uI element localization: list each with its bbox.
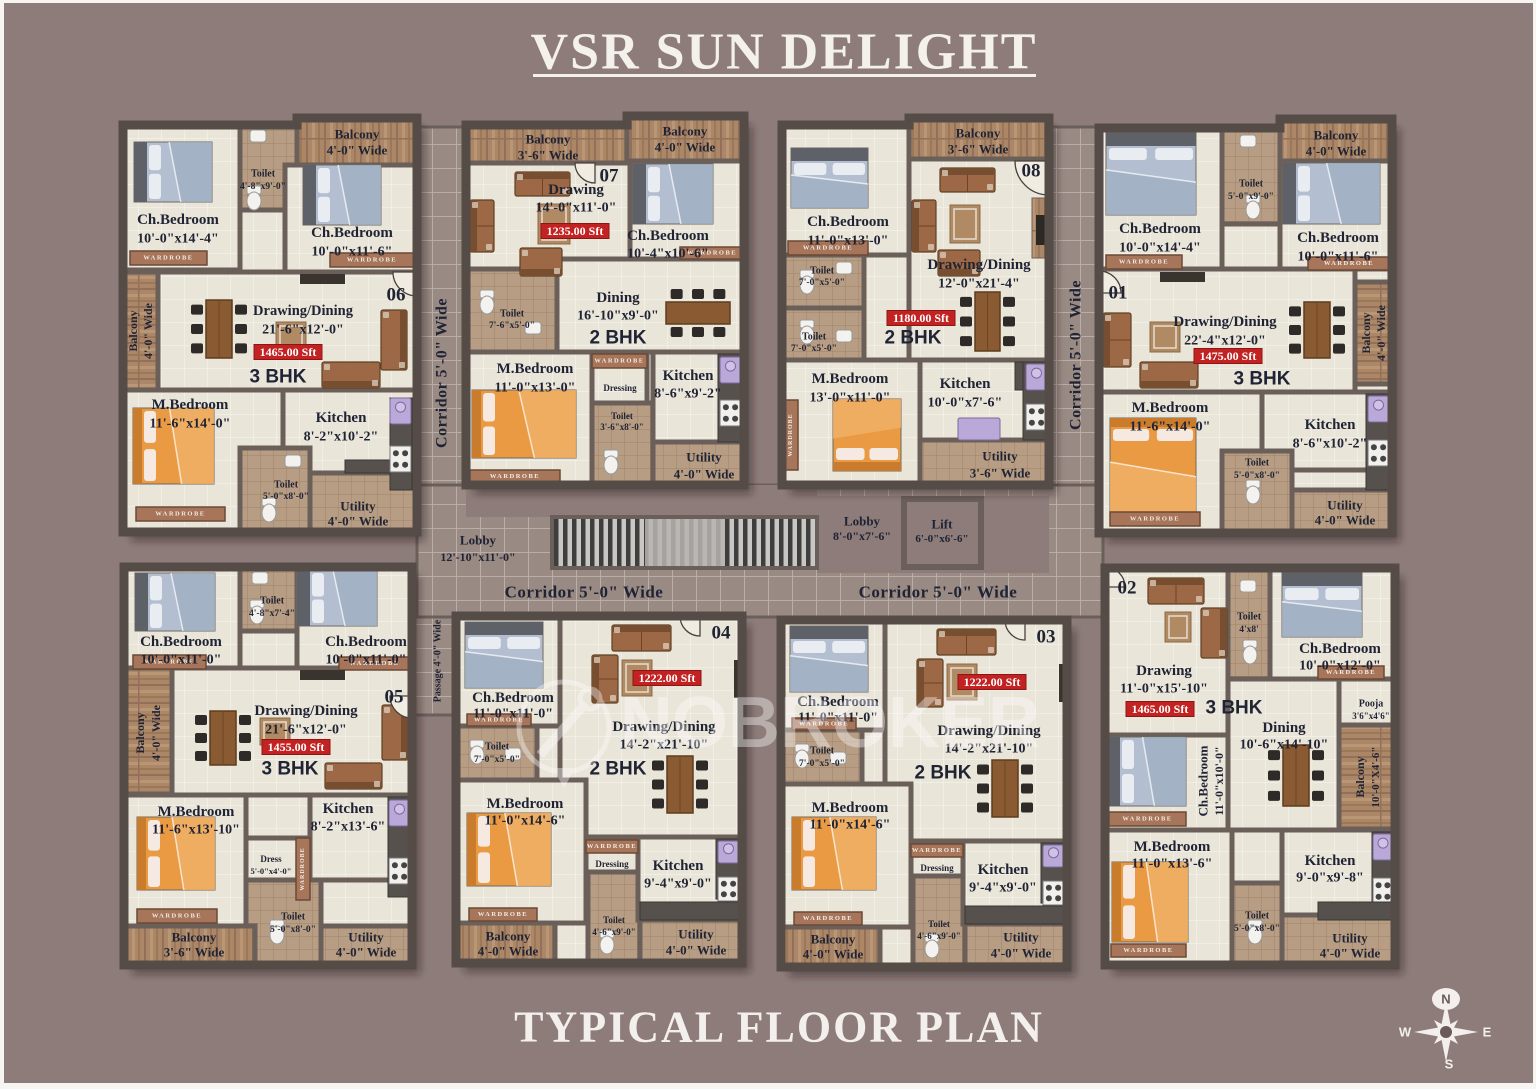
- svg-text:M.Bedroom: M.Bedroom: [152, 397, 229, 413]
- svg-text:Balcony: Balcony: [133, 712, 147, 753]
- svg-text:4'-0" Wide: 4'-0" Wide: [149, 704, 163, 761]
- svg-text:21'-6"x12'-0": 21'-6"x12'-0": [262, 323, 344, 338]
- svg-text:Dressing: Dressing: [603, 383, 637, 393]
- svg-text:10'-0"x14'-4": 10'-0"x14'-4": [1119, 241, 1201, 256]
- svg-text:Utility: Utility: [686, 450, 722, 465]
- svg-text:M.Bedroom: M.Bedroom: [812, 800, 889, 816]
- svg-text:WARDROBE: WARDROBE: [300, 847, 306, 890]
- svg-text:07: 07: [600, 166, 620, 187]
- svg-text:7'-0"x5'-0": 7'-0"x5'-0": [799, 278, 845, 288]
- svg-text:WARDROBE: WARDROBE: [152, 913, 202, 920]
- svg-text:Kitchen: Kitchen: [978, 862, 1029, 878]
- svg-text:1180.00 Sft: 1180.00 Sft: [893, 311, 949, 325]
- svg-text:Utility: Utility: [340, 499, 376, 514]
- svg-text:10'-0"x12'-0": 10'-0"x12'-0": [1299, 659, 1381, 674]
- svg-text:8'-2"x13'-6": 8'-2"x13'-6": [311, 820, 386, 835]
- svg-text:Utility: Utility: [1332, 931, 1368, 946]
- svg-text:03: 03: [1037, 627, 1056, 648]
- svg-text:3'-6" Wide: 3'-6" Wide: [970, 466, 1031, 481]
- svg-text:Toilet: Toilet: [251, 169, 276, 180]
- svg-text:02: 02: [1118, 578, 1137, 599]
- svg-text:M.Bedroom: M.Bedroom: [1134, 839, 1211, 855]
- svg-text:11'-0"x13'-0": 11'-0"x13'-0": [808, 234, 889, 249]
- svg-text:Kitchen: Kitchen: [653, 858, 704, 874]
- svg-text:Balcony: Balcony: [663, 124, 708, 139]
- svg-text:10'-6"x14'-10": 10'-6"x14'-10": [1240, 738, 1329, 753]
- svg-text:Toilet: Toilet: [802, 332, 827, 343]
- svg-text:Toilet: Toilet: [1239, 179, 1264, 190]
- svg-text:Toilet: Toilet: [260, 596, 285, 607]
- svg-text:10'-4"x10'-6": 10'-4"x10'-6": [627, 247, 709, 262]
- svg-text:7'-6"x5'-0": 7'-6"x5'-0": [489, 321, 535, 331]
- svg-text:Kitchen: Kitchen: [1305, 417, 1356, 433]
- svg-text:Dining: Dining: [1262, 720, 1306, 736]
- svg-text:4'x8': 4'x8': [1239, 625, 1259, 635]
- svg-text:N: N: [1441, 992, 1450, 1007]
- svg-text:Ch.Bedroom: Ch.Bedroom: [472, 690, 554, 706]
- svg-text:8'-0"x7'-6": 8'-0"x7'-6": [833, 529, 891, 543]
- svg-text:4'-0" Wide: 4'-0" Wide: [327, 143, 388, 158]
- svg-text:Drawing: Drawing: [1136, 663, 1192, 679]
- svg-text:2 BHK: 2 BHK: [914, 763, 971, 784]
- svg-text:Toilet: Toilet: [485, 742, 510, 753]
- svg-text:WARDROBE: WARDROBE: [788, 413, 794, 456]
- svg-text:11'-6"x14'-0": 11'-6"x14'-0": [1130, 420, 1211, 435]
- svg-text:Utility: Utility: [982, 449, 1018, 464]
- svg-text:3'-6" Wide: 3'-6" Wide: [518, 148, 579, 163]
- svg-text:11'-0"x15'-10": 11'-0"x15'-10": [1120, 682, 1208, 697]
- svg-text:22'-4"x12'-0": 22'-4"x12'-0": [1184, 334, 1266, 349]
- svg-text:4'-0" Wide: 4'-0" Wide: [655, 140, 716, 155]
- svg-text:WARDROBE: WARDROBE: [803, 915, 853, 922]
- svg-text:1465.00 Sft: 1465.00 Sft: [260, 345, 317, 359]
- svg-text:4'-0" Wide: 4'-0" Wide: [328, 514, 389, 529]
- svg-text:Ch.Bedroom: Ch.Bedroom: [325, 634, 407, 650]
- svg-text:4'-0" Wide: 4'-0" Wide: [1315, 513, 1376, 528]
- svg-text:Corridor 5'-0" Wide: Corridor 5'-0" Wide: [505, 583, 664, 602]
- svg-text:WARDROBE: WARDROBE: [1123, 947, 1173, 954]
- svg-text:Drawing: Drawing: [548, 182, 604, 198]
- svg-text:1235.00 Sft: 1235.00 Sft: [547, 224, 604, 238]
- svg-text:Passage 4'-0" Wide: Passage 4'-0" Wide: [433, 619, 444, 702]
- svg-text:3 BHK: 3 BHK: [1205, 698, 1262, 719]
- svg-text:4'-0" Wide: 4'-0" Wide: [336, 945, 397, 960]
- svg-text:3 BHK: 3 BHK: [249, 367, 306, 388]
- svg-text:Drawing/Dining: Drawing/Dining: [927, 257, 1031, 273]
- svg-text:Balcony: Balcony: [1359, 312, 1373, 353]
- svg-text:21'-6"x12'-0": 21'-6"x12'-0": [265, 723, 347, 738]
- svg-text:WARDROBE: WARDROBE: [587, 843, 637, 850]
- svg-text:M.Bedroom: M.Bedroom: [812, 371, 889, 387]
- svg-text:5'-0"x8'-0": 5'-0"x8'-0": [1234, 924, 1280, 934]
- svg-text:VSR SUN DELIGHT: VSR SUN DELIGHT: [531, 24, 1038, 81]
- svg-text:3'-6" Wide: 3'-6" Wide: [164, 945, 225, 960]
- svg-text:M.Bedroom: M.Bedroom: [487, 796, 564, 812]
- svg-text:1465.00 Sft: 1465.00 Sft: [1132, 702, 1189, 716]
- svg-text:Toilet: Toilet: [603, 915, 625, 925]
- svg-text:WARDROBE: WARDROBE: [155, 511, 205, 518]
- svg-text:Ch.Bedroom: Ch.Bedroom: [311, 225, 393, 241]
- svg-text:6'-0"x6'-6": 6'-0"x6'-6": [915, 533, 968, 545]
- svg-text:Ch.Bedroom: Ch.Bedroom: [1297, 230, 1379, 246]
- svg-text:Pooja: Pooja: [1359, 699, 1383, 710]
- svg-text:8'-6"x9'-2": 8'-6"x9'-2": [654, 387, 722, 402]
- svg-text:4'-0" Wide: 4'-0" Wide: [1306, 144, 1367, 159]
- svg-text:Lobby: Lobby: [460, 533, 497, 548]
- svg-text:Toilet: Toilet: [1245, 911, 1270, 922]
- svg-text:Utility: Utility: [1327, 498, 1363, 513]
- svg-text:2 BHK: 2 BHK: [884, 328, 941, 349]
- svg-text:Lift: Lift: [932, 517, 954, 532]
- svg-text:4'-6"x9'-0": 4'-6"x9'-0": [592, 927, 636, 937]
- svg-text:4'-0" Wide: 4'-0" Wide: [141, 302, 155, 359]
- svg-text:3 BHK: 3 BHK: [1233, 369, 1290, 390]
- svg-text:Balcony: Balcony: [811, 932, 856, 947]
- svg-text:5'-0"x8'-0": 5'-0"x8'-0": [1234, 471, 1280, 481]
- svg-text:4'-0" Wide: 4'-0" Wide: [991, 946, 1052, 961]
- svg-text:4'-0" Wide: 4'-0" Wide: [803, 947, 864, 962]
- svg-text:4'-8"x7'-4": 4'-8"x7'-4": [249, 609, 295, 619]
- svg-text:01: 01: [1109, 283, 1128, 304]
- svg-text:Drawing/Dining: Drawing/Dining: [254, 703, 358, 719]
- svg-text:11'-6"x14'-0": 11'-6"x14'-0": [150, 417, 231, 432]
- svg-text:08: 08: [1022, 161, 1041, 182]
- svg-text:9'-4"x9'-0": 9'-4"x9'-0": [644, 877, 712, 892]
- svg-text:Ch.Bedroom: Ch.Bedroom: [807, 214, 889, 230]
- svg-text:Dressing: Dressing: [595, 859, 629, 869]
- svg-text:1455.00 Sft: 1455.00 Sft: [268, 740, 325, 754]
- svg-text:Kitchen: Kitchen: [940, 376, 991, 392]
- svg-text:WARDROBE: WARDROBE: [1130, 516, 1180, 523]
- svg-text:Ch.Bedroom: Ch.Bedroom: [627, 228, 709, 244]
- svg-text:8'-6"x10'-2": 8'-6"x10'-2": [1293, 437, 1368, 452]
- svg-text:Balcony: Balcony: [1314, 128, 1359, 143]
- svg-text:Ch.Bedroom: Ch.Bedroom: [140, 634, 222, 650]
- svg-text:Corridor 5'-0" Wide: Corridor 5'-0" Wide: [434, 298, 451, 448]
- svg-text:TYPICAL FLOOR PLAN: TYPICAL FLOOR PLAN: [514, 1003, 1044, 1052]
- svg-text:Ch.Bedroom: Ch.Bedroom: [137, 212, 219, 228]
- svg-text:3'-6" Wide: 3'-6" Wide: [948, 142, 1009, 157]
- svg-text:05: 05: [385, 687, 404, 708]
- svg-text:4'-0" Wide: 4'-0" Wide: [666, 943, 727, 958]
- svg-text:14'-0"x11'-0": 14'-0"x11'-0": [536, 201, 617, 216]
- svg-text:4'-0" Wide: 4'-0" Wide: [1374, 304, 1388, 361]
- svg-text:10'-0"x7'-6": 10'-0"x7'-6": [928, 396, 1003, 411]
- svg-text:Kitchen: Kitchen: [1305, 853, 1356, 869]
- svg-text:M.Bedroom: M.Bedroom: [1132, 400, 1209, 416]
- svg-text:5'-0"x4'-0": 5'-0"x4'-0": [250, 866, 291, 876]
- svg-text:4'-0" Wide: 4'-0" Wide: [1320, 946, 1381, 961]
- svg-text:Balcony: Balcony: [126, 310, 140, 351]
- svg-text:3'6"x4'6": 3'6"x4'6": [1352, 711, 1390, 721]
- svg-text:11'-0"x13'-0": 11'-0"x13'-0": [495, 381, 576, 396]
- svg-text:W: W: [1399, 1025, 1412, 1040]
- svg-text:WARDROBE: WARDROBE: [490, 473, 540, 480]
- svg-text:WARDROBE: WARDROBE: [594, 358, 644, 365]
- svg-text:Drawing/Dining: Drawing/Dining: [253, 303, 354, 319]
- svg-text:5'-0"x9'-0": 5'-0"x9'-0": [1228, 192, 1274, 202]
- svg-text:3'-6"x8'-0": 3'-6"x8'-0": [600, 422, 644, 432]
- svg-text:4'-0" Wide: 4'-0" Wide: [674, 467, 735, 482]
- svg-text:Toilet: Toilet: [1245, 458, 1270, 469]
- svg-text:WARDROBE: WARDROBE: [912, 847, 962, 854]
- svg-text:10'-0"x11'-0": 10'-0"x11'-0": [326, 653, 407, 668]
- svg-text:NOBROKER: NOBROKER: [620, 683, 1040, 763]
- svg-text:Ch.Bedroom: Ch.Bedroom: [1196, 745, 1211, 816]
- svg-text:7'-0"x5'-0": 7'-0"x5'-0": [474, 755, 520, 765]
- svg-text:Balcony: Balcony: [526, 132, 571, 147]
- svg-text:11'-0"x10'-0": 11'-0"x10'-0": [1212, 746, 1226, 815]
- svg-text:4'-0" Wide: 4'-0" Wide: [478, 944, 539, 959]
- svg-text:8'-2"x10'-2": 8'-2"x10'-2": [304, 430, 379, 445]
- svg-text:Drawing/Dining: Drawing/Dining: [1173, 314, 1277, 330]
- svg-text:WARDROBE: WARDROBE: [1122, 816, 1172, 823]
- svg-text:Corridor 5'-0" Wide: Corridor 5'-0" Wide: [1068, 280, 1085, 430]
- svg-text:10'-0"x14'-4": 10'-0"x14'-4": [137, 232, 219, 247]
- svg-text:1475.00 Sft: 1475.00 Sft: [1200, 349, 1257, 363]
- svg-text:9'-0"x9'-8": 9'-0"x9'-8": [1296, 871, 1364, 886]
- svg-text:16'-10"x9'-0": 16'-10"x9'-0": [577, 309, 659, 324]
- svg-text:10'-0"x11'-0": 10'-0"x11'-0": [141, 653, 222, 668]
- svg-text:Ch.Bedroom: Ch.Bedroom: [1299, 641, 1381, 657]
- svg-text:WARDROBE: WARDROBE: [478, 911, 528, 918]
- svg-text:Ch.Bedroom: Ch.Bedroom: [1119, 221, 1201, 237]
- svg-text:12'-0"x21'-4": 12'-0"x21'-4": [938, 277, 1020, 292]
- svg-text:Balcony: Balcony: [335, 127, 380, 142]
- svg-text:10'-0"x11'-6": 10'-0"x11'-6": [312, 245, 393, 260]
- svg-text:Corridor 5'-0" Wide: Corridor 5'-0" Wide: [859, 583, 1018, 602]
- svg-text:2 BHK: 2 BHK: [589, 328, 646, 349]
- svg-text:Balcony: Balcony: [486, 929, 531, 944]
- svg-text:4'-8"x9'-0": 4'-8"x9'-0": [240, 182, 286, 192]
- svg-text:3 BHK: 3 BHK: [261, 759, 318, 780]
- svg-text:12'-10"x11'-0": 12'-10"x11'-0": [440, 550, 515, 564]
- svg-text:Toilet: Toilet: [928, 919, 950, 929]
- svg-text:Balcony: Balcony: [956, 126, 1001, 141]
- svg-text:Balcony: Balcony: [1353, 756, 1367, 797]
- svg-text:Toilet: Toilet: [274, 480, 299, 491]
- svg-text:M.Bedroom: M.Bedroom: [497, 361, 574, 377]
- svg-text:Toilet: Toilet: [281, 912, 306, 923]
- svg-text:Toilet: Toilet: [810, 266, 835, 277]
- svg-text:Lobby: Lobby: [844, 514, 881, 529]
- svg-text:Toilet: Toilet: [1237, 612, 1262, 623]
- svg-text:WARDROBE: WARDROBE: [143, 255, 193, 262]
- svg-text:13'-0"x11'-0": 13'-0"x11'-0": [810, 391, 891, 406]
- svg-text:Kitchen: Kitchen: [663, 368, 714, 384]
- svg-text:11'-6"x13'-10": 11'-6"x13'-10": [152, 823, 240, 838]
- svg-text:06: 06: [387, 285, 406, 306]
- svg-text:Dining: Dining: [596, 290, 640, 306]
- svg-text:4'-6"x9'-0": 4'-6"x9'-0": [917, 931, 961, 941]
- svg-text:Dress: Dress: [260, 854, 282, 864]
- svg-text:Kitchen: Kitchen: [316, 410, 367, 426]
- svg-text:Utility: Utility: [1003, 930, 1039, 945]
- svg-text:04: 04: [712, 623, 732, 644]
- svg-text:11'-0"x14'-6": 11'-0"x14'-6": [810, 818, 891, 833]
- svg-text:Toilet: Toilet: [500, 309, 525, 320]
- svg-text:11'-0"x11'-0": 11'-0"x11'-0": [473, 707, 553, 722]
- svg-text:7'-0"x5'-0": 7'-0"x5'-0": [791, 344, 837, 354]
- svg-text:9'-4"x9'-0": 9'-4"x9'-0": [969, 881, 1037, 896]
- svg-text:E: E: [1483, 1025, 1492, 1040]
- svg-text:Utility: Utility: [348, 930, 384, 945]
- svg-text:Balcony: Balcony: [172, 930, 217, 945]
- svg-text:M.Bedroom: M.Bedroom: [158, 804, 235, 820]
- svg-text:11'-0"x14'-6": 11'-0"x14'-6": [485, 814, 566, 829]
- svg-text:WARDROBE: WARDROBE: [1119, 259, 1169, 266]
- svg-text:5'-0"x8'-0": 5'-0"x8'-0": [270, 925, 316, 935]
- svg-text:Toilet: Toilet: [611, 411, 633, 421]
- svg-text:5'-0"x8'-0": 5'-0"x8'-0": [263, 492, 309, 502]
- svg-text:Dressing: Dressing: [920, 863, 954, 873]
- svg-text:11'-0"x13'-6": 11'-0"x13'-6": [1132, 857, 1213, 872]
- svg-text:Kitchen: Kitchen: [323, 801, 374, 817]
- svg-text:10'-0"X4'-6": 10'-0"X4'-6": [1370, 746, 1382, 807]
- svg-text:S: S: [1445, 1057, 1454, 1072]
- svg-text:10'-0"x11'-6": 10'-0"x11'-6": [1298, 250, 1379, 265]
- svg-text:Utility: Utility: [678, 927, 714, 942]
